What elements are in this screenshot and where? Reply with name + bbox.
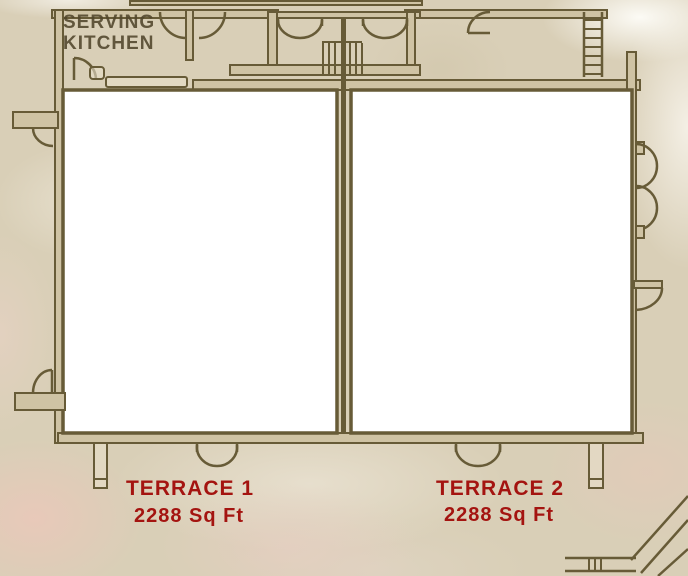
terrace-2-name: TERRACE 2 <box>436 477 564 501</box>
door-swing-icon <box>636 288 662 310</box>
divider-wall <box>341 18 346 433</box>
door-swing-icon <box>636 186 657 230</box>
floor-plan-drawing <box>0 0 688 576</box>
double-door-icon <box>278 18 322 38</box>
right-top-wall <box>405 10 607 18</box>
landing-wall <box>230 65 420 75</box>
terrace-1-name: TERRACE 1 <box>126 477 254 501</box>
terrace-1-room <box>63 90 337 433</box>
terrace-1-area: 2288 Sq Ft <box>134 505 244 528</box>
door-swing-icon <box>33 370 52 393</box>
door-hinge-block <box>636 226 644 238</box>
vestibule-top-wall <box>268 12 420 18</box>
ladder-icon <box>584 12 602 77</box>
counter <box>106 77 187 87</box>
double-door-icon <box>456 443 500 466</box>
wall-protrusion <box>15 393 65 410</box>
right-section <box>468 12 602 77</box>
wall-protrusion <box>13 112 58 128</box>
door-swing-icon <box>33 128 53 146</box>
kitchen-label-line2: KITCHEN <box>63 33 155 54</box>
top-outer-wall <box>130 1 422 5</box>
right-wall-doors <box>634 142 662 310</box>
double-door-icon <box>197 443 237 466</box>
floor-plan: SERVING KITCHEN TERRACE 1 2288 Sq Ft TER… <box>0 0 688 576</box>
kitchen-label: SERVING KITCHEN <box>63 12 155 54</box>
terrace-2-room <box>351 90 632 433</box>
pillar <box>589 443 603 488</box>
ramp-icon <box>565 496 688 576</box>
double-door-icon <box>363 18 407 38</box>
terrace-2-area: 2288 Sq Ft <box>444 504 554 527</box>
door-leaf <box>634 281 662 288</box>
sink-icon <box>90 67 104 79</box>
kitchen-interior-wall <box>186 10 193 60</box>
kitchen-label-line1: SERVING <box>63 12 155 33</box>
pillar <box>94 443 107 488</box>
